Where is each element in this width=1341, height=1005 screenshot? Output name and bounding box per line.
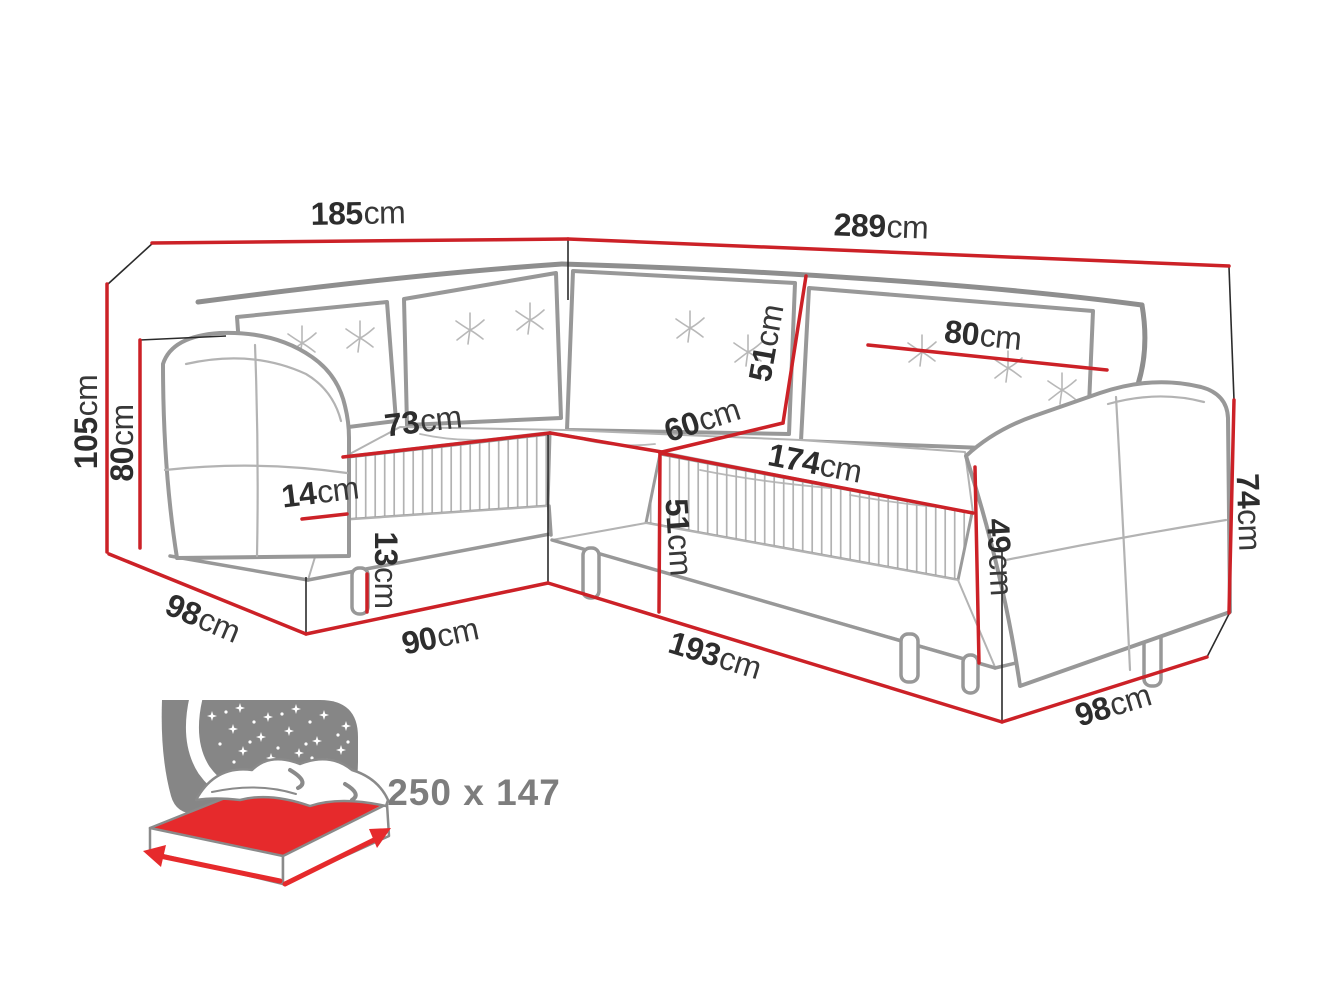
dim-unit: cm bbox=[817, 446, 865, 489]
dim-label-height-total: 105cm bbox=[70, 375, 102, 470]
dim-unit: cm bbox=[978, 317, 1023, 357]
dim-value: 289 bbox=[833, 206, 886, 244]
dim-unit: cm bbox=[886, 208, 929, 245]
dim-unit: cm bbox=[315, 469, 361, 510]
dim-label-arm-height-left: 80cm bbox=[106, 404, 138, 481]
dim-unit: cm bbox=[982, 553, 1020, 596]
dim-label-seat-front-height: 51cm bbox=[660, 497, 697, 576]
dim-unit: cm bbox=[104, 404, 140, 446]
dim-value: 51 bbox=[742, 344, 783, 384]
dim-value: 73 bbox=[382, 404, 421, 444]
dim-value: 105 bbox=[68, 417, 104, 469]
dim-label-arm-height-right: 74cm bbox=[1232, 473, 1267, 551]
dim-label-cushion-width: 80cm bbox=[943, 315, 1023, 355]
dim-label-leg-height: 13cm bbox=[370, 531, 402, 608]
dim-unit: cm bbox=[418, 398, 464, 439]
dim-value: 51 bbox=[658, 497, 696, 534]
dim-label-band-height: 14cm bbox=[280, 471, 361, 512]
dim-unit: cm bbox=[68, 375, 104, 417]
dim-line-185 bbox=[152, 239, 568, 243]
sleeper-bed-icon bbox=[143, 698, 391, 884]
dim-value: 49 bbox=[980, 517, 1018, 553]
sleeping-area-size-label: 250 x 147 bbox=[387, 772, 561, 814]
dim-value: 13 bbox=[368, 531, 404, 566]
dim-value: 80 bbox=[104, 447, 140, 482]
dim-unit: cm bbox=[1231, 508, 1268, 551]
dim-unit: cm bbox=[661, 533, 700, 577]
dim-value: 185 bbox=[310, 195, 363, 232]
dim-label-seat-depth-left: 73cm bbox=[383, 400, 464, 441]
dim-value: 90 bbox=[398, 619, 439, 661]
dim-unit: cm bbox=[748, 302, 791, 349]
dim-value: 14 bbox=[279, 475, 318, 515]
dim-label-back-width-right: 289cm bbox=[833, 208, 929, 243]
dim-unit: cm bbox=[363, 194, 405, 231]
left-armrest bbox=[163, 333, 349, 558]
dim-unit: cm bbox=[368, 567, 404, 609]
dim-label-seat-height-right: 49cm bbox=[982, 518, 1018, 597]
dim-value: 80 bbox=[943, 313, 981, 352]
sofa-dimensions-diagram: 185cm 289cm 105cm 80cm 73cm 14cm 13cm 98… bbox=[0, 0, 1341, 1005]
dim-value: 74 bbox=[1230, 473, 1267, 509]
dim-label-back-width-left: 185cm bbox=[310, 196, 405, 230]
